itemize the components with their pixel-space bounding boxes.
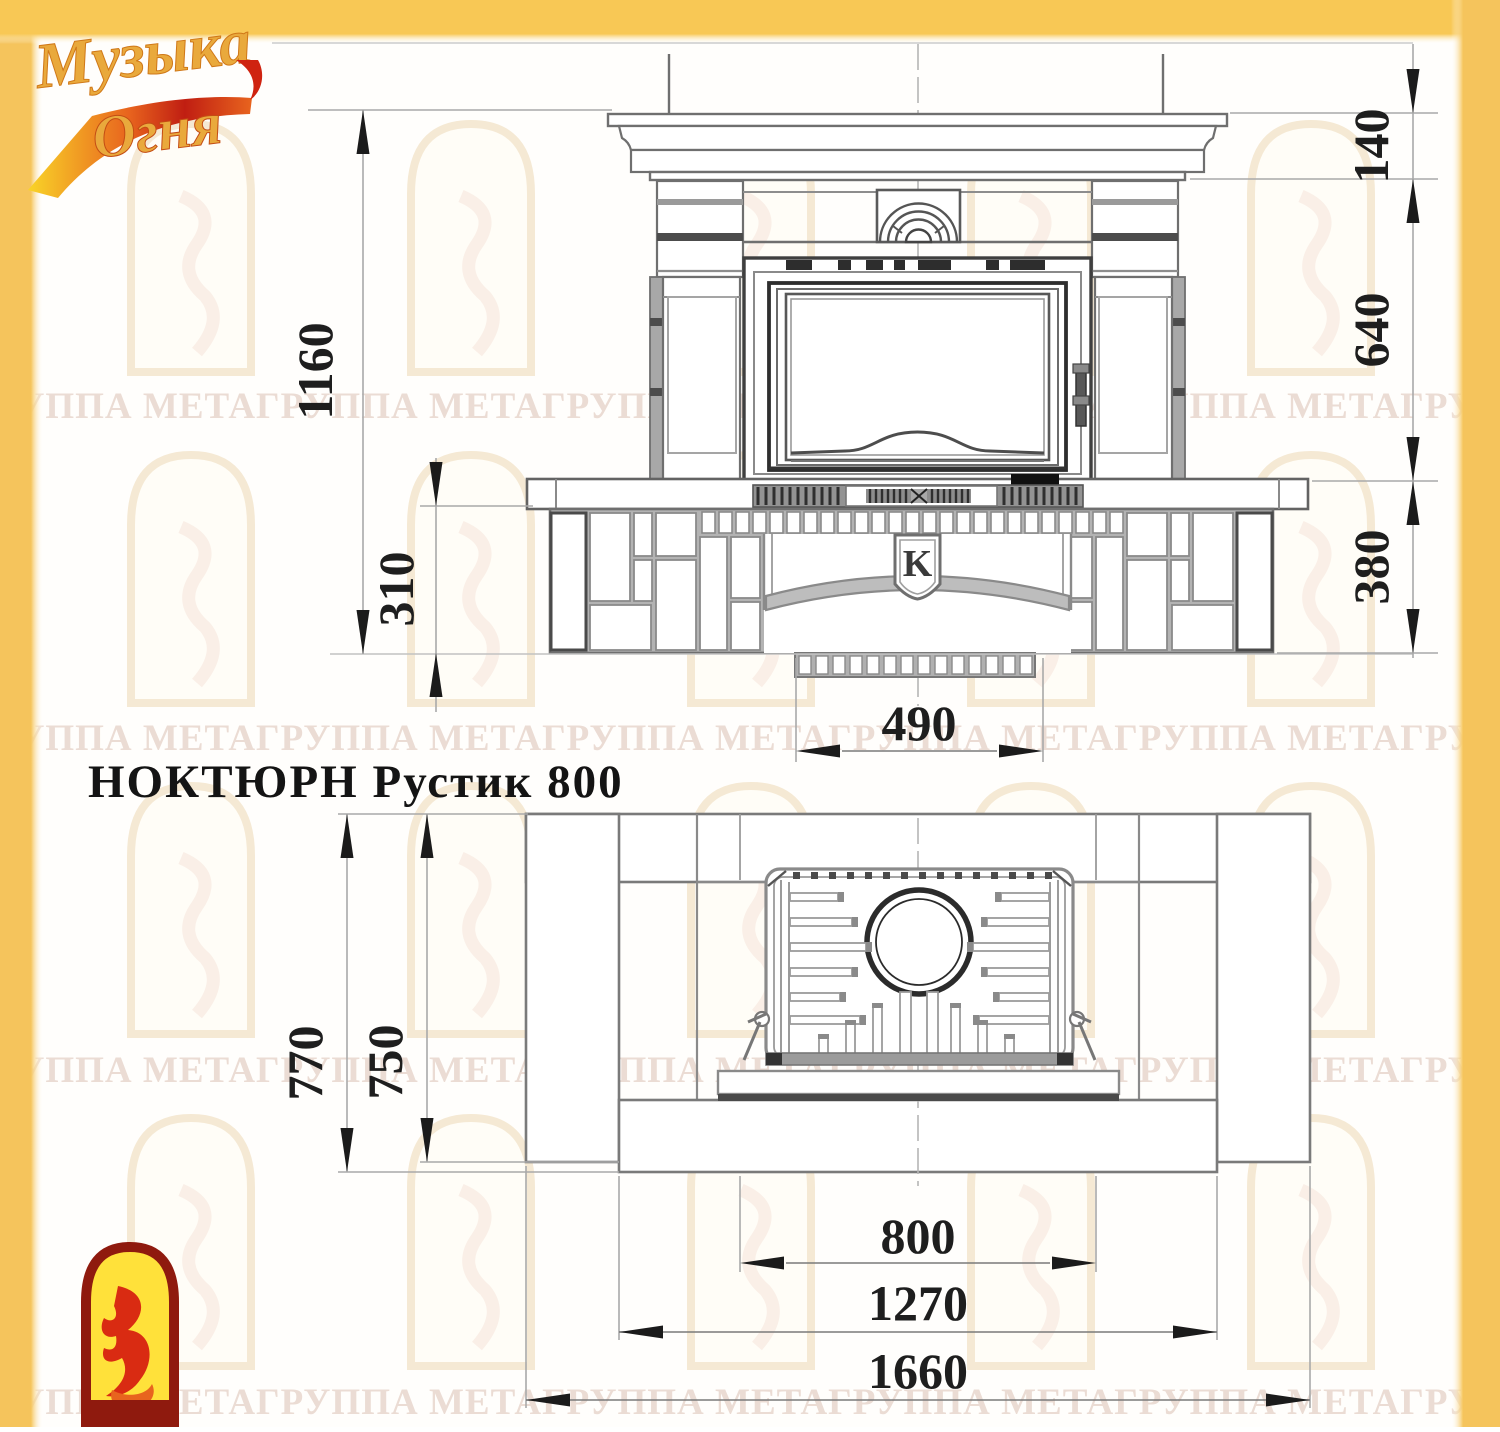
svg-text:640: 640: [1343, 293, 1399, 368]
svg-text:K: K: [903, 543, 933, 585]
svg-text:310: 310: [368, 552, 424, 627]
svg-text:1660: 1660: [868, 1343, 968, 1399]
svg-text:1160: 1160: [287, 322, 343, 419]
svg-text:380: 380: [1343, 530, 1399, 605]
svg-text:ГРУППА МЕТАГРУППА МЕТАГРУППА М: ГРУППА МЕТАГРУППА МЕТАГРУППА МЕТАГРУППА …: [0, 718, 1500, 759]
svg-text:НОКТЮРН Рустик 800: НОКТЮРН Рустик 800: [88, 756, 624, 808]
svg-text:1270: 1270: [868, 1275, 968, 1331]
svg-text:770: 770: [277, 1026, 333, 1101]
svg-text:750: 750: [357, 1025, 413, 1100]
svg-text:490: 490: [882, 695, 957, 751]
svg-text:140: 140: [1343, 109, 1399, 184]
svg-text:800: 800: [881, 1208, 956, 1264]
